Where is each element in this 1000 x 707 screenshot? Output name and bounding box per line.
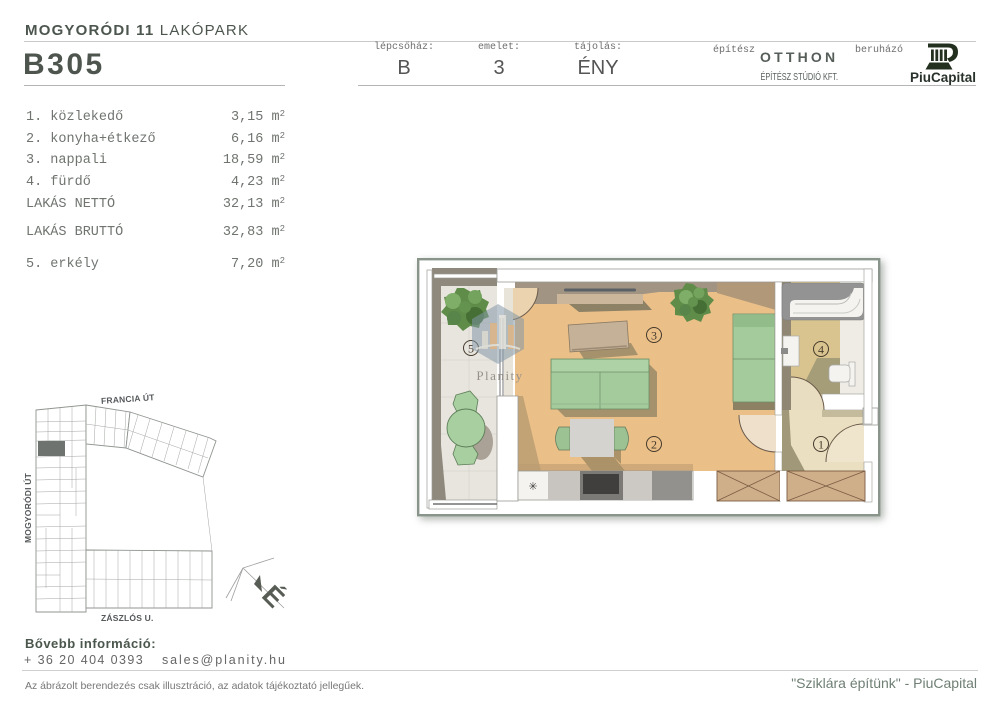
svg-text:4: 4 <box>818 343 824 357</box>
svg-text:✳: ✳ <box>528 481 537 493</box>
svg-text:É: É <box>256 579 291 614</box>
svg-text:1: 1 <box>818 438 824 452</box>
svg-text:3: 3 <box>651 329 657 343</box>
svg-text:2: 2 <box>651 438 657 452</box>
